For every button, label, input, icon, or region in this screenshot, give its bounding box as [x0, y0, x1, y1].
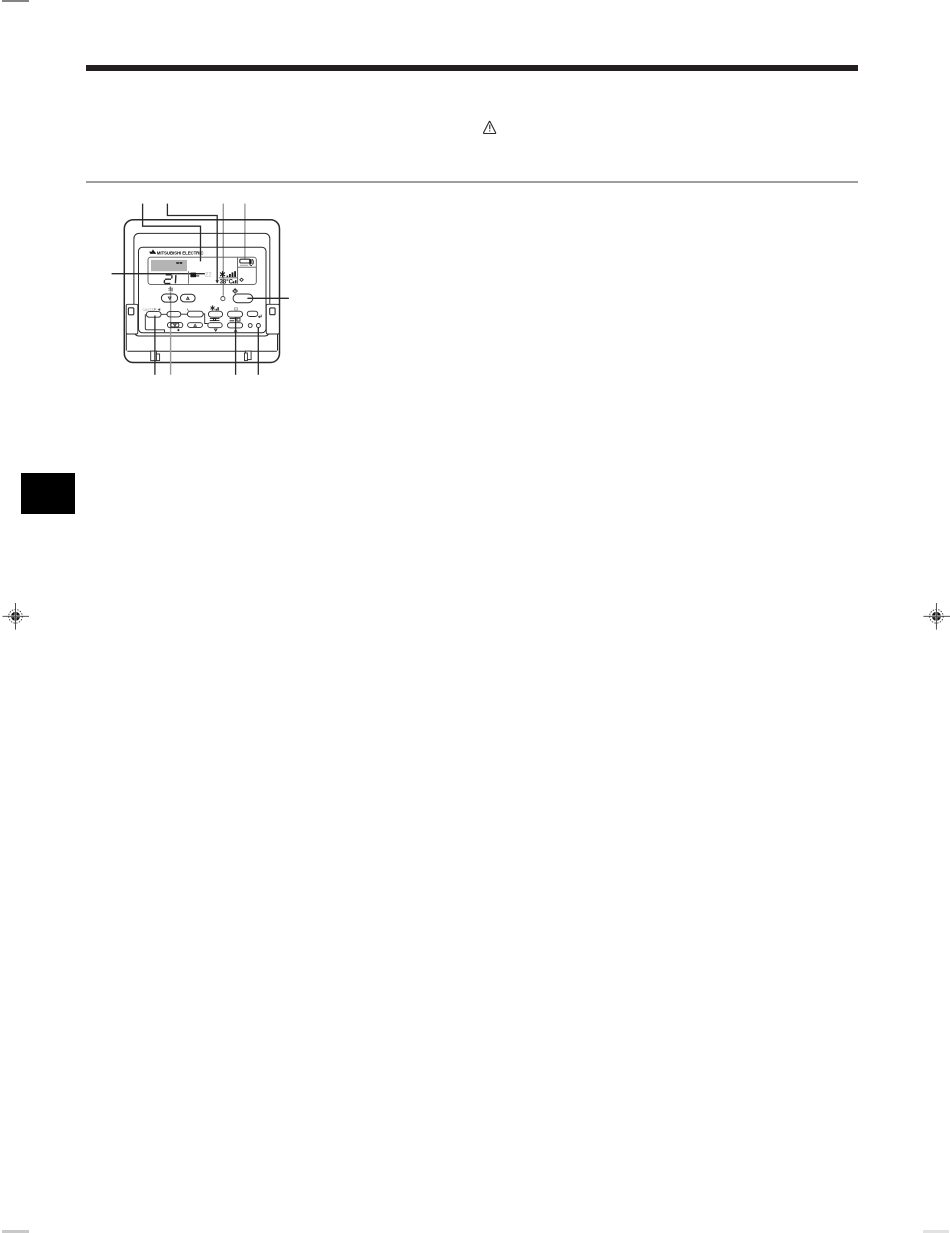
svg-text:○△-□□□K ◀: ○△-□□□K ◀ — [142, 308, 160, 312]
svg-text:MITSUBISHI ELECTRIC: MITSUBISHI ELECTRIC — [157, 250, 205, 255]
svg-text:22: 22 — [205, 272, 212, 278]
svg-text:38°C: 38°C — [220, 279, 234, 285]
